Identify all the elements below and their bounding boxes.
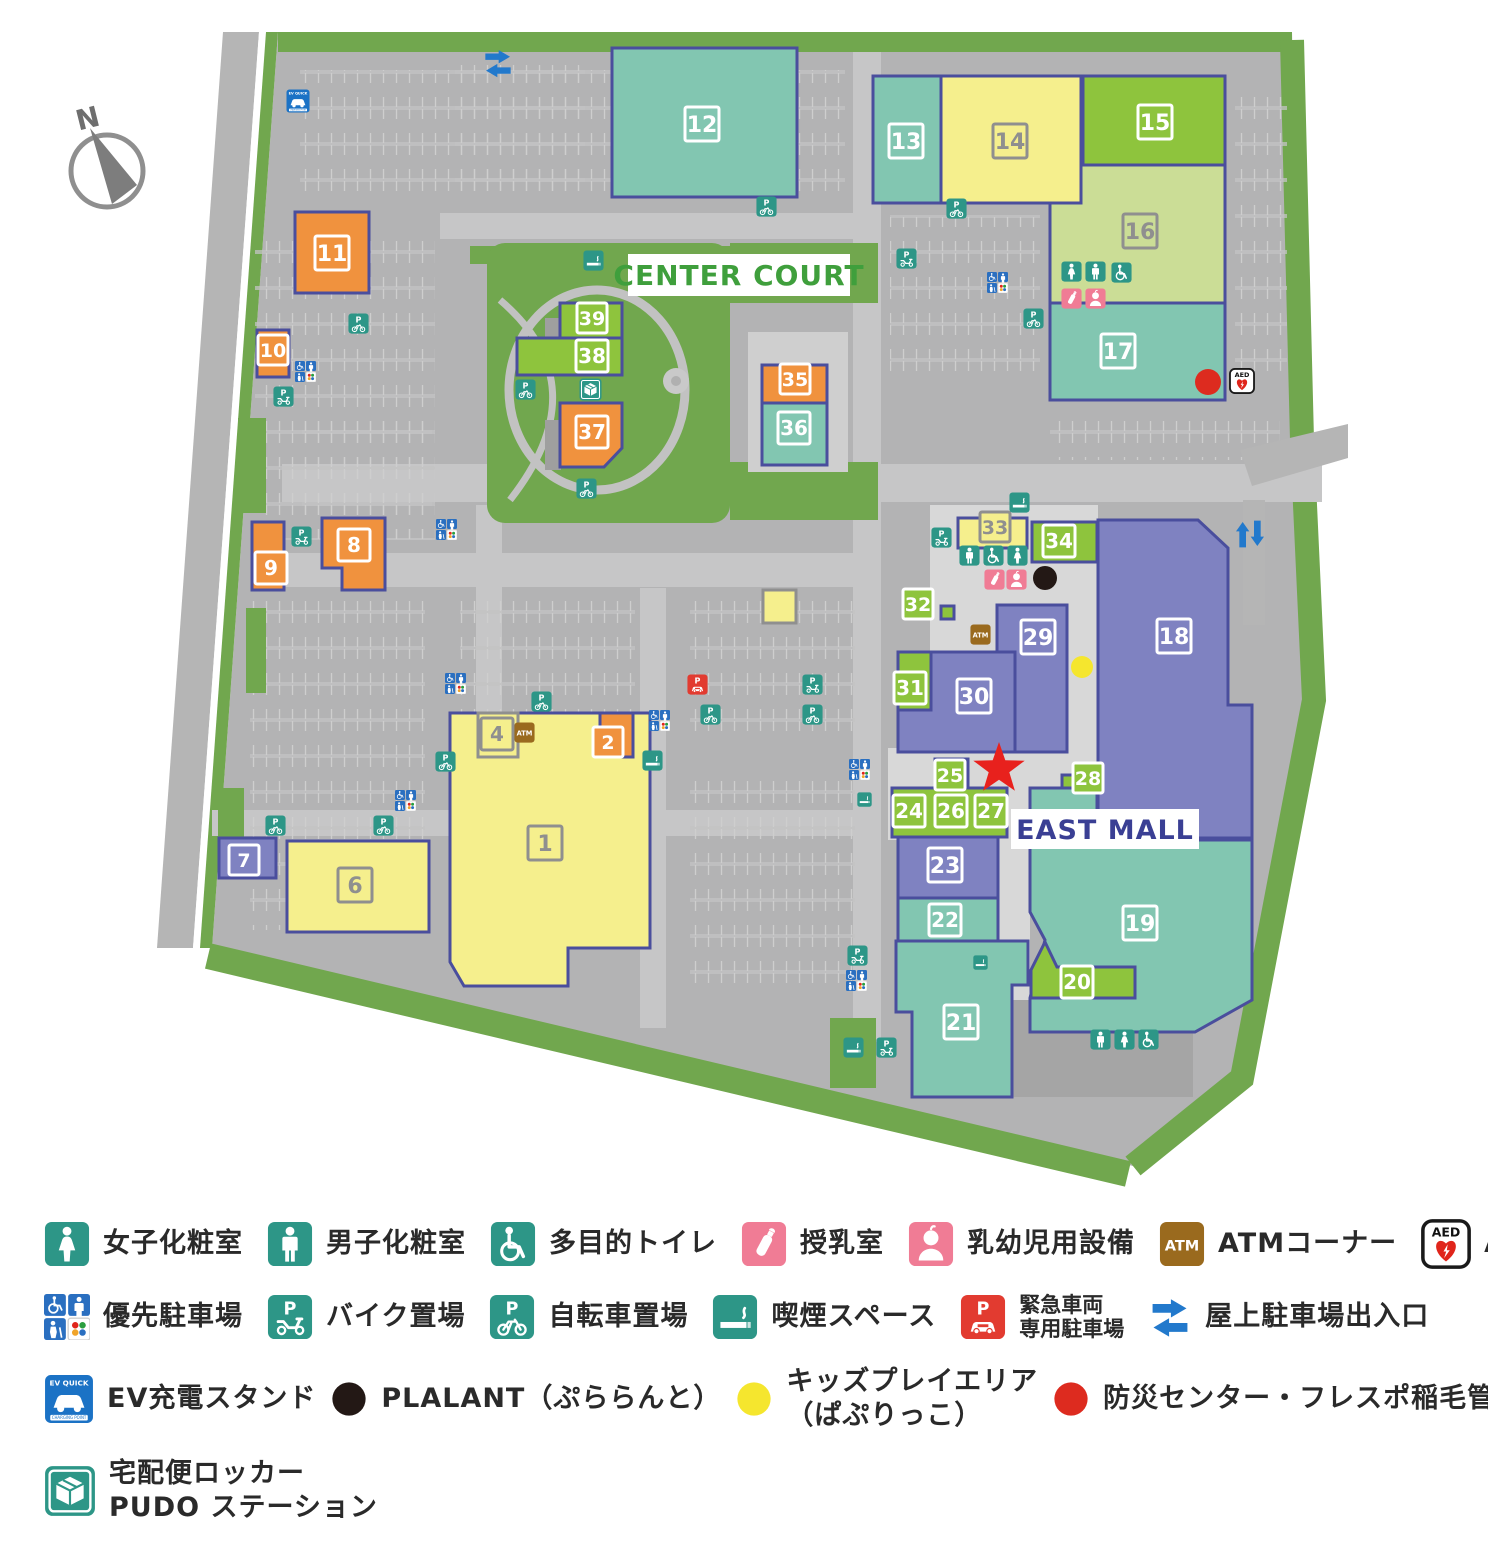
building-24-number: 24 [895,799,923,823]
building-20-number: 20 [1063,970,1091,994]
building-15-number: 15 [1140,111,1171,136]
legend-label: 優先駐車場 [103,1300,243,1334]
smoke-icon [1009,492,1029,512]
p-bike-icon [531,691,551,711]
legend-row-3: EV充電スタンドPLALANT（ぷららんと）キッズプレイエリア（ぱぷりっこ）防災… [44,1365,1488,1433]
toilet-multi-icon [983,545,1003,565]
nursing-icon [741,1221,787,1267]
legend-label: キッズプレイエリア（ぱぷりっこ） [786,1365,1038,1433]
p-bike-icon [265,815,285,835]
legend-item-infant: 乳幼児用設備 [908,1221,1135,1267]
toilet-m-icon [1090,1029,1110,1049]
building-28-number: 28 [1075,768,1101,790]
building-21-number: 21 [946,1011,977,1036]
building-7-number: 7 [237,850,250,872]
nursing-icon [984,569,1004,589]
dot-yellow-marker [1071,656,1093,678]
legend-item-dot-red: 防災センター・フレスポ稲毛管理事務所 [1052,1380,1488,1418]
legend-item-arr-h: 屋上駐車場出入口 [1148,1295,1429,1339]
p-moto-icon [931,527,951,547]
building-2-number: 2 [601,732,614,754]
legend-item-smoke: 喫煙スペース [712,1294,936,1340]
infant-icon [1006,569,1026,589]
atm-icon [970,624,990,644]
building-18 [1098,520,1252,838]
p-bike-icon [489,1294,535,1340]
legend-label-line2: PUDO ステーション [109,1491,378,1525]
legend: 女子化粧室男子化粧室多目的トイレ授乳室乳幼児用設備ATMコーナーAED優先駐車場… [0,1205,1488,1548]
toilet-m-icon [1085,261,1105,281]
building-35-number: 35 [782,369,808,391]
p-car-icon [687,674,707,694]
priority-icon [44,1294,90,1340]
legend-label: 喫煙スペース [771,1300,936,1334]
building-32-number: 32 [905,594,931,616]
legend-item-p-car: 緊急車両専用駐車場 [960,1293,1124,1341]
building-6-number: 6 [347,874,362,899]
building-30-number: 30 [959,685,990,710]
atm-icon [514,722,534,742]
legend-row-4: 宅配便ロッカーPUDO ステーション [44,1457,1488,1525]
p-moto-icon [273,386,293,406]
legend-row-1: 女子化粧室男子化粧室多目的トイレ授乳室乳幼児用設備ATMコーナーAED [44,1219,1488,1269]
legend-label: 防災センター・フレスポ稲毛管理事務所 [1103,1382,1488,1416]
atm-icon [1159,1221,1205,1267]
p-moto-icon [847,945,867,965]
legend-item-p-moto: バイク置場 [267,1294,465,1340]
legend-label-line2: 専用駐車場 [1019,1317,1124,1341]
dot-yellow-icon [735,1380,773,1418]
p-bike-icon [373,815,393,835]
legend-label: 男子化粧室 [326,1227,466,1261]
legend-label: 緊急車両専用駐車場 [1019,1293,1124,1341]
legend-item-nursing: 授乳室 [741,1221,884,1267]
toilet-w-icon [1007,545,1027,565]
p-moto-icon [896,248,916,268]
p-bike-icon [348,313,368,333]
toilet-multi-icon [1138,1029,1158,1049]
building-17-number: 17 [1103,340,1134,365]
dot-red-icon [1052,1380,1090,1418]
building-1-number: 1 [537,832,552,857]
building-31-number: 31 [896,676,924,700]
legend-label: 多目的トイレ [549,1227,717,1261]
building-9-number: 9 [264,556,278,580]
building-11-number: 11 [317,242,348,267]
toilet-w-icon [44,1221,90,1267]
legend-label: バイク置場 [326,1300,465,1334]
p-moto-icon [267,1294,313,1340]
building-23-number: 23 [930,854,961,879]
smoke-icon [712,1294,758,1340]
p-moto-icon [802,674,822,694]
toilet-m-icon [959,545,979,565]
building-10-number: 10 [260,340,286,362]
dot-black-icon [330,1380,368,1418]
toilet-m-icon [267,1221,313,1267]
legend-item-toilet-multi: 多目的トイレ [490,1221,717,1267]
legend-label: 屋上駐車場出入口 [1205,1300,1429,1334]
legend-item-p-bike: 自転車置場 [489,1294,688,1340]
nursing-icon [1061,288,1081,308]
center-court-label: CENTER COURT [613,259,864,292]
building-13-number: 13 [891,130,922,155]
infant-icon [908,1221,954,1267]
building-37-number: 37 [578,420,606,444]
legend-label: 自転車置場 [548,1300,688,1334]
legend-item-ev: EV充電スタンド [44,1374,316,1424]
legend-item-dot-black: PLALANT（ぷららんと） [330,1380,721,1418]
arr-h-icon [1148,1295,1192,1339]
legend-label: 女子化粧室 [103,1227,243,1261]
building-25-number: 25 [937,765,963,787]
toilet-multi-icon [1111,262,1131,282]
pudo-icon [579,378,601,400]
p-moto-icon [291,526,311,546]
building-4-number: 4 [490,722,504,746]
building-34-number: 34 [1045,529,1073,553]
aed-icon [1230,369,1254,393]
smoke-icon [843,1037,863,1057]
legend-item-atm: ATMコーナー [1159,1221,1397,1267]
legend-label: 授乳室 [800,1227,884,1261]
legend-label: 宅配便ロッカーPUDO ステーション [109,1457,378,1525]
toilet-multi-icon [490,1221,536,1267]
legend-item-toilet-m: 男子化粧室 [267,1221,466,1267]
p-bike-icon [515,379,535,399]
building-32 [941,606,954,619]
p-bike-icon [700,704,720,724]
smoke-icon [973,955,987,969]
p-car-icon [960,1294,1006,1340]
legend-label: ATMコーナー [1218,1227,1397,1261]
p-bike-icon [576,478,596,498]
building-36-number: 36 [780,416,808,440]
p-bike-icon [435,751,455,771]
dot-black-marker [1033,566,1057,590]
ev-icon [287,90,310,113]
legend-item-toilet-w: 女子化粧室 [44,1221,243,1267]
building-26-number: 26 [937,799,965,823]
legend-label: EV充電スタンド [107,1382,316,1416]
legend-item-priority: 優先駐車場 [44,1294,243,1340]
smoke-icon [857,792,871,806]
building-12-number: 12 [687,113,718,138]
legend-label: AED [1484,1227,1488,1261]
building-14-number: 14 [995,130,1026,155]
building-39-number: 39 [579,308,605,330]
building-22-number: 22 [931,908,959,932]
building-27-number: 27 [977,799,1005,823]
smoke-icon [583,250,603,270]
site-map: ATM AED P P [0,0,1488,1205]
legend-label: PLALANT（ぷららんと） [381,1382,721,1416]
p-moto-icon [876,1037,896,1057]
ev-icon [44,1374,94,1424]
east-mall-label: EAST MALL [1016,815,1194,846]
p-bike-icon [946,198,966,218]
building-16-number: 16 [1125,220,1156,245]
infant-icon [1085,288,1105,308]
p-bike-icon [802,704,822,724]
legend-item-aed: AED [1421,1219,1488,1269]
building-29-number: 29 [1023,626,1054,651]
toilet-w-icon [1061,261,1081,281]
legend-item-pudo: 宅配便ロッカーPUDO ステーション [44,1457,378,1525]
dot-red-marker [1195,369,1221,395]
legend-item-dot-yellow: キッズプレイエリア（ぱぷりっこ） [735,1365,1038,1433]
compass-north-label: N [72,100,103,138]
building-18-number: 18 [1159,625,1190,650]
building-19-number: 19 [1125,912,1156,937]
building-8-number: 8 [347,533,361,557]
pudo-icon [44,1465,96,1517]
building-38-number: 38 [578,344,606,368]
toilet-w-icon [1114,1029,1134,1049]
building-33-number: 33 [982,517,1008,539]
aed-icon [1421,1219,1471,1269]
p-bike-icon [1023,308,1043,328]
compass: N [71,100,143,207]
legend-label: 乳幼児用設備 [967,1227,1135,1261]
building-kiosk [763,590,796,623]
p-bike-icon [756,196,776,216]
legend-label-line2: （ぱぷりっこ） [786,1399,1038,1433]
smoke-icon [642,750,662,770]
legend-row-2: 優先駐車場バイク置場自転車置場喫煙スペース緊急車両専用駐車場屋上駐車場出入口 [44,1293,1488,1341]
